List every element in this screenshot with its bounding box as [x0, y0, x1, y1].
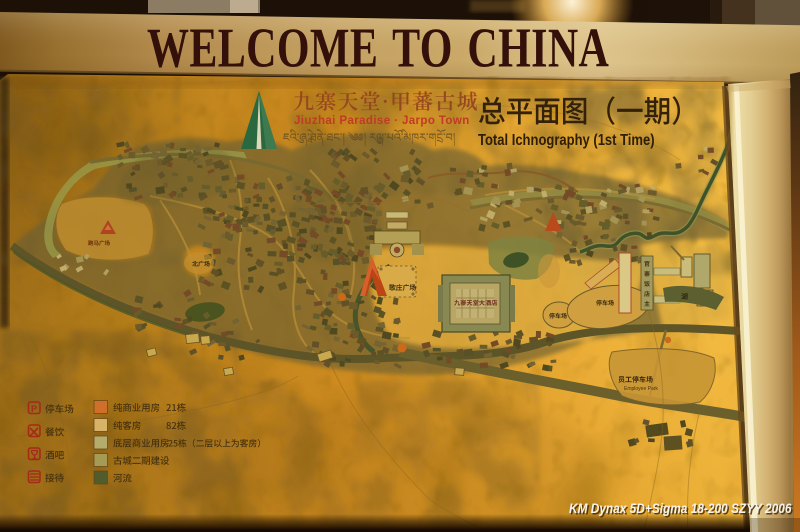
- svg-text:Jiuzhai Paradise · Jarpo Town: Jiuzhai Paradise · Jarpo Town: [294, 115, 470, 127]
- svg-text:WELCOME TO CHINA: WELCOME TO CHINA: [147, 17, 609, 79]
- svg-text:Employee Park: Employee Park: [624, 386, 658, 392]
- svg-text:KM Dynax 5D+Sigma 18-200 SZYY: KM Dynax 5D+Sigma 18-200 SZYY 2006: [569, 500, 792, 516]
- svg-text:P: P: [31, 404, 37, 414]
- svg-text:Total Ichnography (1st Time): Total Ichnography (1st Time): [478, 132, 655, 149]
